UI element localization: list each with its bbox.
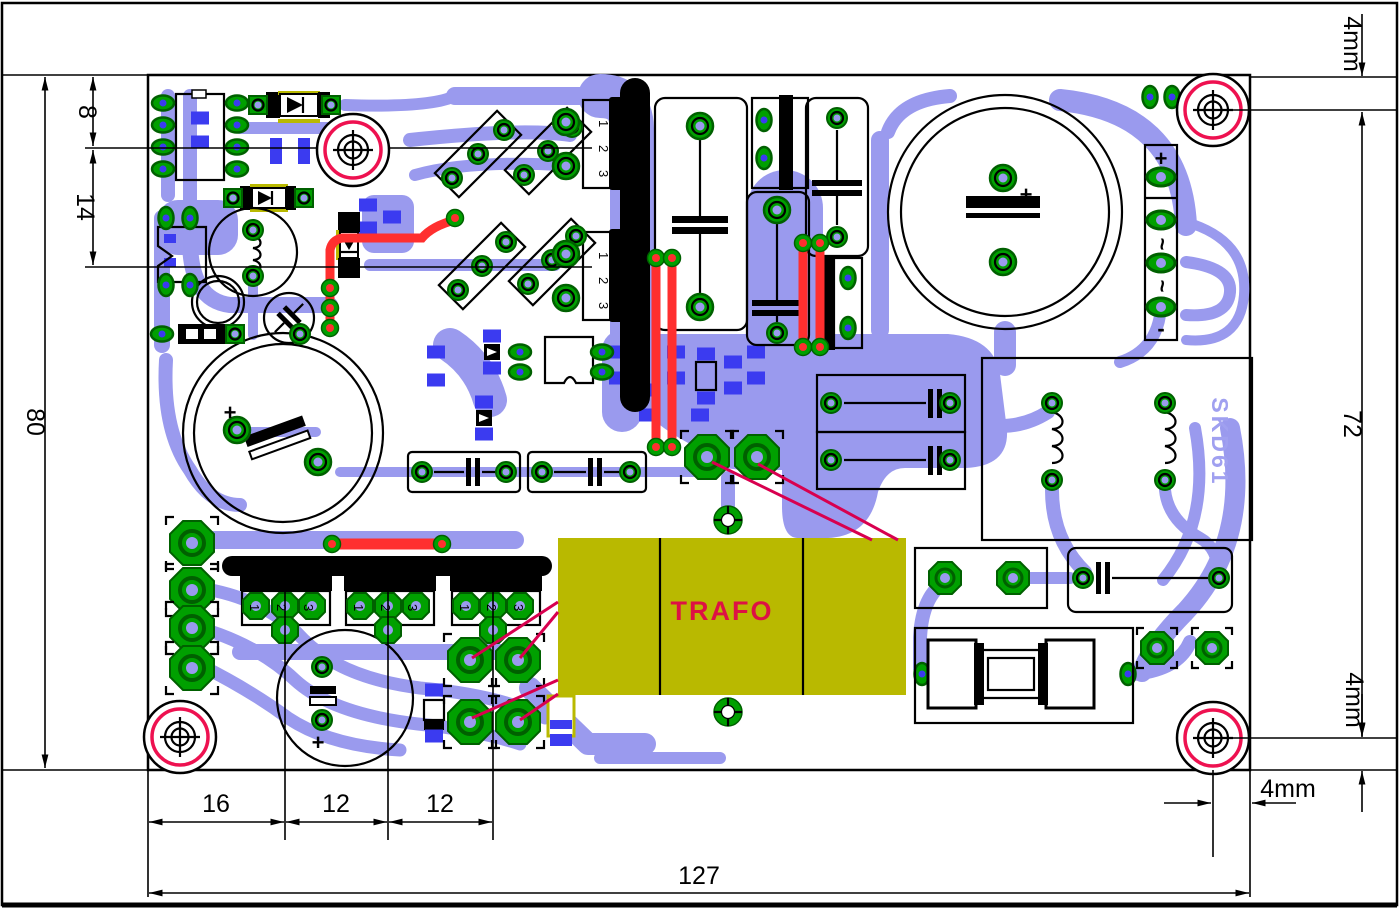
cap-plus-big: + — [1020, 182, 1033, 207]
svg-text:3: 3 — [301, 604, 316, 611]
dim-seg-12b: 12 — [426, 790, 454, 818]
bottom-left-connector — [178, 324, 226, 344]
svg-text:2: 2 — [378, 604, 393, 611]
connector-plus: + — [1155, 146, 1168, 171]
cap-plus-left: + — [224, 400, 237, 425]
svg-text:3: 3 — [596, 302, 611, 309]
connector-ac2: ~ — [1150, 280, 1175, 293]
smd-diode-2 — [475, 396, 493, 441]
svg-text:2: 2 — [596, 145, 611, 152]
svg-text:2: 2 — [596, 277, 611, 284]
yellow-component — [548, 696, 574, 746]
mounting-hole-bottom-left — [144, 701, 216, 773]
svg-text:1: 1 — [596, 120, 611, 127]
cap-plus-bottom: + — [312, 730, 325, 755]
transformer-label: TRAFO — [671, 596, 774, 626]
svg-text:2: 2 — [274, 604, 289, 611]
dim-corner-margin: 4mm — [1260, 775, 1316, 803]
svg-text:1: 1 — [596, 252, 611, 259]
silk-marking: SKD61 — [1207, 397, 1233, 486]
dim-right-top-margin: 4mm — [1338, 16, 1366, 72]
dim-hole-span: 72 — [1338, 410, 1366, 438]
diode-d3-vertical — [336, 212, 360, 278]
svg-text:1: 1 — [351, 604, 366, 611]
dim-seg-16: 16 — [202, 790, 230, 818]
pcb-layout-drawing: TRAFO 80 8 14 — [0, 0, 1400, 920]
mounting-hole-top-left — [317, 114, 389, 186]
smd-diode-1 — [483, 330, 501, 375]
svg-text:3: 3 — [511, 604, 526, 611]
svg-text:2: 2 — [484, 604, 499, 611]
connector-ac1: ~ — [1150, 238, 1175, 251]
dim-right-bottom-margin: 4mm — [1340, 672, 1368, 728]
dim-top-offset: 8 — [73, 105, 101, 119]
dim-seg-12a: 12 — [322, 790, 350, 818]
heatsink-bar — [222, 556, 552, 576]
dim-overall-width: 127 — [678, 862, 720, 890]
dim-overall-height: 80 — [21, 408, 49, 436]
connector-minus: - — [1157, 316, 1164, 341]
svg-text:3: 3 — [405, 604, 420, 611]
dim-second-offset: 14 — [71, 193, 99, 221]
svg-text:3: 3 — [596, 170, 611, 177]
svg-text:1: 1 — [457, 604, 472, 611]
svg-text:1: 1 — [247, 604, 262, 611]
